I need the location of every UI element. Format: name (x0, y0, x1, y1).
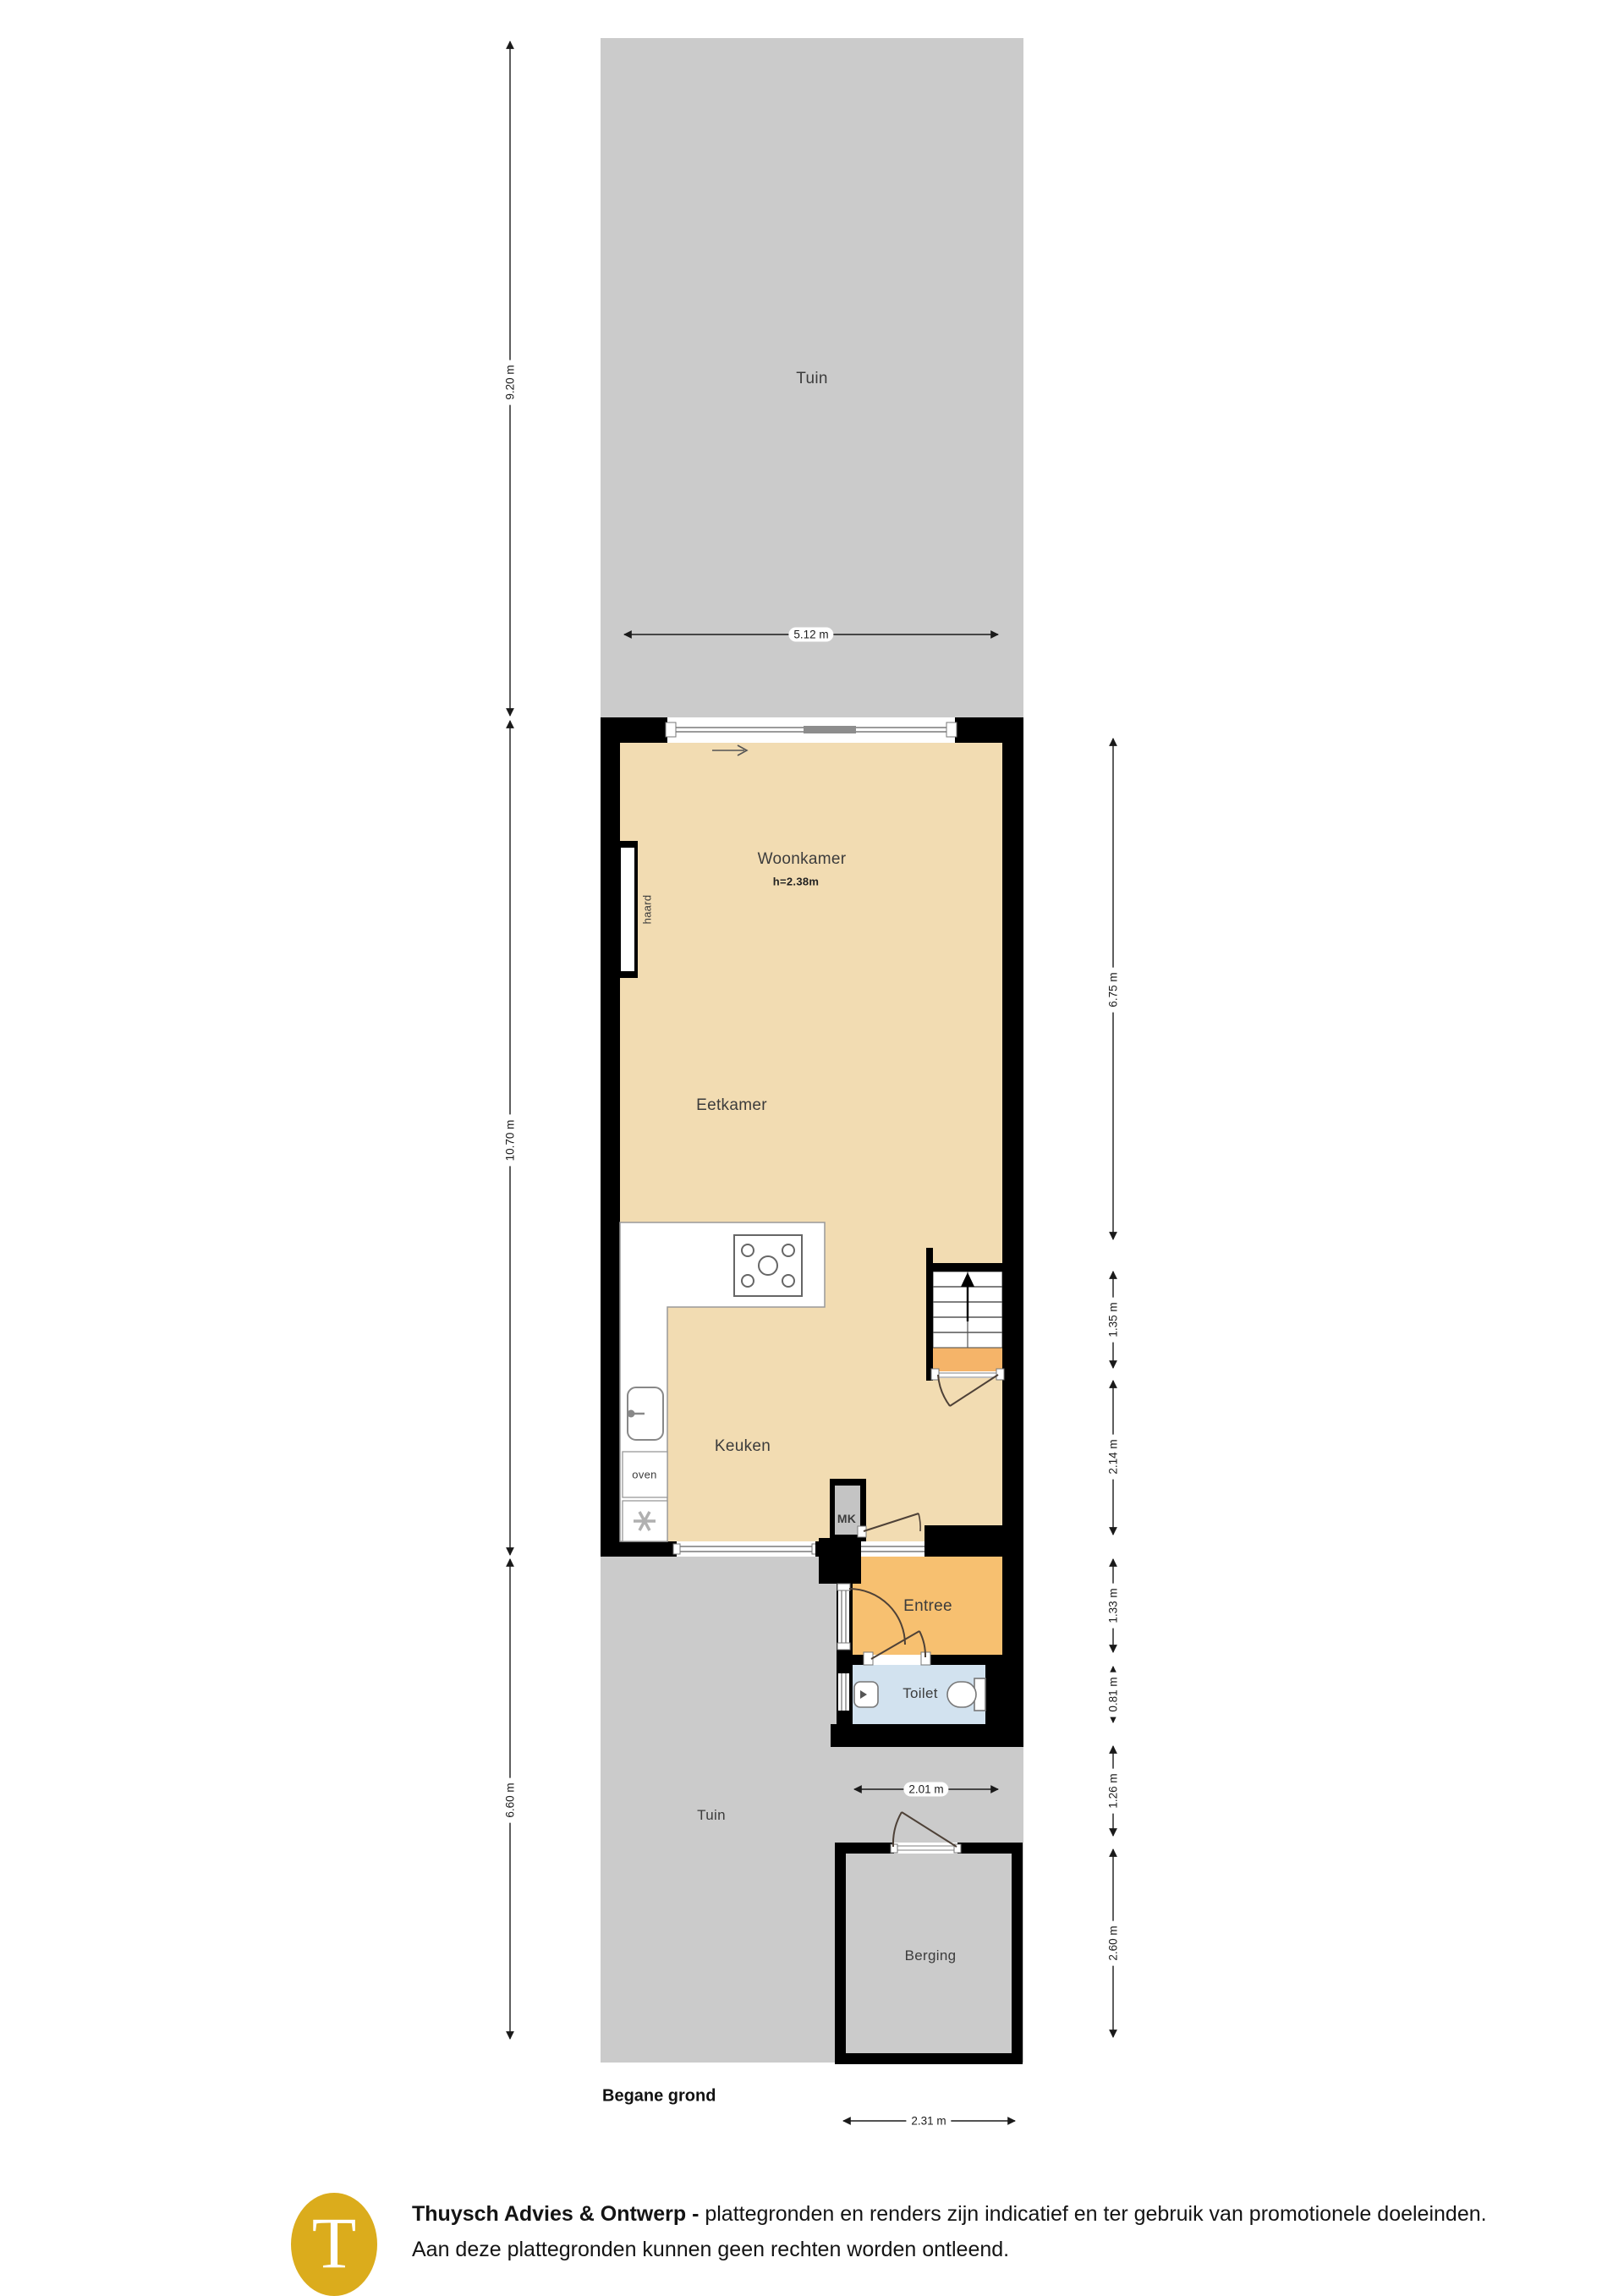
staircase (933, 1272, 1002, 1371)
dim-label-1-33: 1.33 m (1106, 1583, 1121, 1628)
footer-line-2: Aan deze plattegronden kunnen geen recht… (412, 2232, 1487, 2267)
stove-icon (734, 1235, 802, 1296)
wc-icon (947, 1678, 985, 1711)
dim-label-2-60: 2.60 m (1106, 1920, 1121, 1965)
sink-icon (628, 1387, 664, 1440)
dim-label-10-70: 10.70 m (503, 1115, 518, 1167)
dim-label-6-60: 6.60 m (503, 1777, 518, 1822)
dim-label-1-35: 1.35 m (1106, 1297, 1121, 1342)
room-label-berging: Berging (905, 1947, 957, 1964)
dim-label-2-31: 2.31 m (906, 2114, 951, 2128)
floorplan-page: Tuin Woonkamer h=2.38m Eetkamer Keuken E… (0, 0, 1624, 2296)
room-label-eetkamer: Eetkamer (696, 1096, 767, 1115)
footer-brand: Thuysch Advies & Ontwerp - (412, 2202, 699, 2226)
fireplace (616, 841, 638, 978)
label-oven: oven (632, 1469, 656, 1481)
hand-basin-icon (854, 1682, 878, 1707)
room-label-entree: Entree (903, 1597, 952, 1616)
room-label-tuin-top: Tuin (796, 370, 827, 388)
room-label-woonkamer: Woonkamer (758, 850, 847, 869)
dim-label-1-26: 1.26 m (1106, 1768, 1121, 1813)
floor-title: Begane grond (602, 2087, 716, 2106)
footer-line-1-rest: plattegronden en renders zijn indicatief… (699, 2202, 1486, 2226)
room-label-toilet: Toilet (903, 1685, 938, 1702)
dim-label-0-81: 0.81 m (1106, 1672, 1121, 1717)
company-logo: T (291, 2193, 377, 2296)
footer-disclaimer: Thuysch Advies & Ontwerp - plattegronden… (412, 2196, 1487, 2267)
dim-label-6-75: 6.75 m (1106, 967, 1121, 1012)
shed (835, 1812, 1023, 2064)
room-label-ceiling-height: h=2.38m (773, 876, 820, 888)
label-haard: haard (641, 895, 654, 925)
room-label-keuken: Keuken (715, 1437, 771, 1456)
dim-label-9-20: 9.20 m (503, 360, 518, 404)
dim-label-2-01: 2.01 m (903, 1782, 948, 1797)
room-label-mk: MK (837, 1512, 856, 1525)
room-label-tuin-bottom: Tuin (697, 1807, 726, 1824)
logo-letter: T (312, 2206, 357, 2279)
floorplan-drawing (0, 0, 1624, 2296)
dim-label-2-14: 2.14 m (1106, 1434, 1121, 1479)
footer-line-1: Thuysch Advies & Ontwerp - plattegronden… (412, 2196, 1487, 2232)
stair-landing (933, 1348, 1002, 1371)
dim-label-5-12: 5.12 m (788, 628, 833, 642)
